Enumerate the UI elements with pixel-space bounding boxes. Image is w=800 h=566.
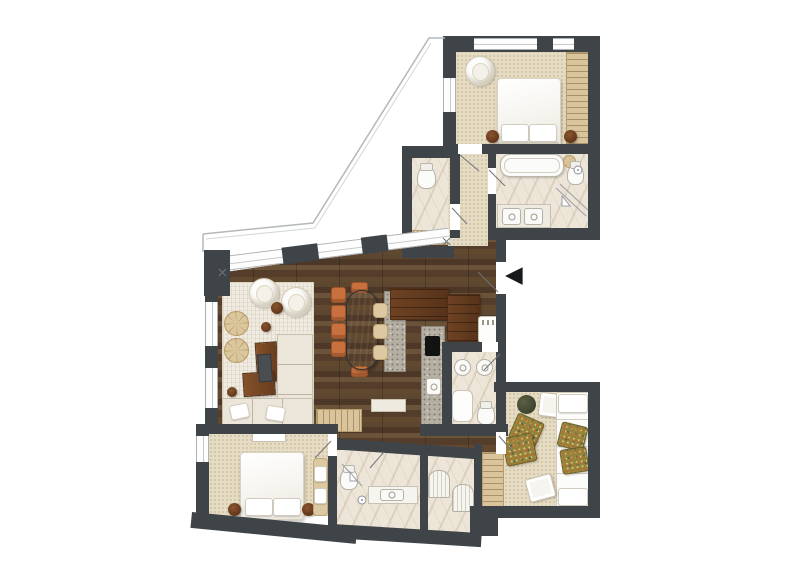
kitchen-sink-icon — [426, 378, 441, 395]
dining-chair-2 — [331, 305, 346, 321]
kitchen-tall-cabinets — [390, 288, 449, 320]
lower-bath-toilet-icon — [340, 468, 358, 490]
door-gap-bath2 — [482, 342, 498, 352]
daybed-pillow-bottom — [558, 488, 588, 506]
door-gap-wc — [450, 204, 460, 230]
armchair-icon-2 — [281, 287, 311, 317]
side-table-brown-2 — [261, 322, 271, 332]
sofa-pillow-2 — [265, 404, 286, 422]
window-master-top-1 — [474, 38, 537, 50]
center-bath-sink-left — [454, 359, 471, 376]
bar-stool-2 — [373, 324, 388, 339]
lower-bath-shower-arch-1 — [428, 470, 450, 498]
side-table-brown-1 — [271, 302, 283, 314]
wc-toilet-icon — [417, 166, 436, 189]
segmented-pouf-1 — [224, 311, 249, 336]
segmented-pouf-2 — [224, 338, 249, 363]
bench-pad-2 — [314, 488, 327, 504]
door-gap-master-bath — [488, 168, 496, 194]
wall-bath3-divider — [420, 452, 428, 532]
center-bath-sink-right — [476, 359, 493, 376]
door-gap-lounge — [496, 432, 506, 454]
master-nightstand-left-icon — [486, 130, 499, 143]
window-master-left — [443, 78, 456, 112]
island-bench — [371, 399, 406, 412]
daybed-pillow-top — [558, 394, 588, 413]
window-bed2-left — [196, 436, 209, 462]
master-sink-left-icon — [502, 208, 521, 225]
wall-lounge-bottom — [494, 506, 600, 518]
wall-west-corner — [204, 250, 230, 296]
master-sink-right-icon — [524, 208, 543, 225]
round-lounge-chair-icon — [465, 56, 495, 86]
entry-closet-cabinet — [447, 294, 480, 342]
bathtub-icon — [500, 154, 564, 177]
center-bath-shower-tray — [452, 390, 473, 422]
wall-lounge-top — [494, 382, 600, 392]
facade-wall-chunk-2 — [361, 234, 389, 254]
daybed-cushion-2 — [559, 446, 590, 475]
second-nightstand-left — [228, 503, 241, 516]
dining-chair-3 — [331, 323, 346, 339]
wall-bath2-bottom — [420, 424, 508, 436]
wall-bed2-top — [196, 424, 338, 434]
lower-bath-basin — [380, 489, 404, 501]
floor-plan-canvas: ◀ — [0, 0, 800, 566]
master-nightstand-right-icon — [564, 130, 577, 143]
bar-stool-1 — [373, 303, 388, 318]
master-bed-pillow-left — [501, 124, 529, 142]
wall-master-right — [588, 36, 600, 240]
entrance-arrow-icon: ◀ — [505, 264, 523, 287]
master-bed-pillow-right — [529, 124, 557, 142]
washer-controls — [482, 320, 496, 325]
dining-chair-1 — [331, 287, 346, 303]
lounge-closet-icon — [482, 452, 504, 510]
center-bath-toilet-icon — [477, 404, 495, 425]
green-pouf-icon — [517, 395, 536, 414]
window-west-1 — [205, 302, 218, 346]
wall-bath2-left — [442, 342, 452, 430]
second-bed-pillow-right — [273, 498, 301, 516]
window-master-top-2 — [553, 38, 574, 50]
dining-chair-4 — [331, 341, 346, 357]
wall-lounge-left — [496, 382, 506, 434]
bench-pad-1 — [314, 466, 327, 482]
cooktop-icon — [425, 336, 440, 356]
master-toilet-icon — [567, 164, 584, 185]
wall-wc-bottom — [402, 246, 454, 258]
bar-stool-3 — [373, 345, 388, 360]
wall-lounge-right — [588, 382, 600, 518]
second-bed-pillow-left — [245, 498, 273, 516]
coffee-table-tray — [257, 354, 273, 383]
window-west-2 — [205, 368, 218, 408]
wall-masterbath-bottom — [488, 228, 600, 240]
door-gap-master-bedroom — [458, 144, 482, 154]
door-gap-bed2 — [328, 434, 337, 456]
side-table-brown-3 — [227, 387, 237, 397]
